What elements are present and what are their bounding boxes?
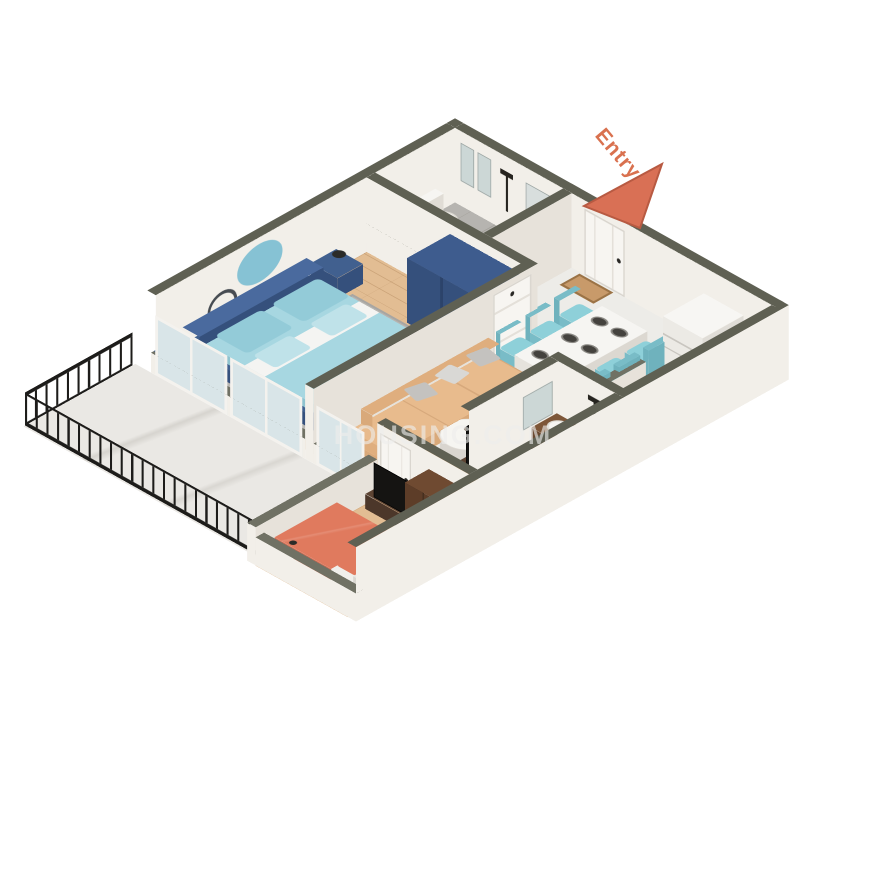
window-panel-icon <box>478 152 491 198</box>
floorplan-render: HOUSING.COM Entry <box>0 0 870 870</box>
shower-icon <box>506 175 508 213</box>
entry-indicator: Entry <box>578 120 718 240</box>
entry-arrow-icon <box>580 158 672 234</box>
housing-watermark: HOUSING.COM <box>303 420 583 451</box>
window-panel-icon <box>461 143 474 189</box>
